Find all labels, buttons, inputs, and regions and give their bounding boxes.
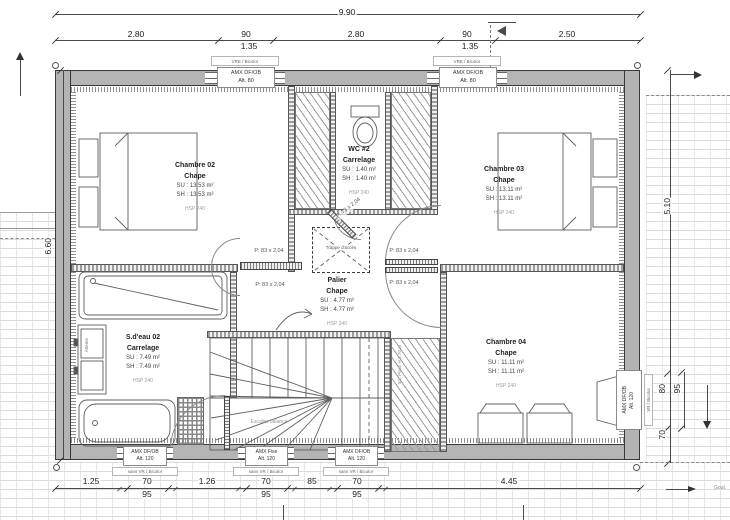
room-su: SU : 7.49 m² bbox=[126, 354, 160, 363]
dim-value: 2.80 bbox=[127, 30, 146, 39]
room-su: SU : 13.11 m² bbox=[484, 186, 524, 195]
window-type: AMX DF/OB bbox=[131, 449, 159, 456]
attente-note: Attente bbox=[85, 338, 90, 352]
dim-value: 90 bbox=[461, 30, 472, 39]
partition-stairs-right bbox=[384, 338, 391, 452]
floor-plan-canvas: 9.90 2.80 90 1.35 2.80 90 1.35 2.50 6.60… bbox=[0, 0, 730, 520]
dim-value: 70 bbox=[351, 477, 362, 486]
door-leaf-chambre02 bbox=[240, 262, 302, 270]
room-finish: Chape bbox=[486, 349, 526, 360]
room-label-chambre03: Chambre 03 Chape SU : 13.11 m² SH : 13.1… bbox=[484, 165, 524, 216]
room-finish: Chape bbox=[320, 287, 354, 298]
window-alt: Alt. 120 bbox=[137, 456, 154, 463]
room-hsp: HSP 240 bbox=[126, 378, 160, 384]
door-leaf-chambre04 bbox=[385, 267, 438, 273]
window-type: AMX DF/OB bbox=[453, 70, 483, 77]
corner-point bbox=[634, 62, 641, 69]
room-sh: SH : 7.49 m² bbox=[126, 363, 160, 372]
room-hsp: HSP 240 bbox=[484, 210, 524, 216]
dim-left-height: 6.60 bbox=[44, 238, 53, 255]
room-name: WC #2 bbox=[342, 145, 376, 156]
room-hsp: HSP 240 bbox=[486, 383, 526, 389]
dim-value: 4.45 bbox=[500, 477, 519, 486]
dim-tick bbox=[637, 11, 644, 18]
up-arrowhead bbox=[16, 52, 24, 60]
window-label-top-right: AMX DF/OB Alt. 80 bbox=[439, 67, 497, 88]
window-label-bottom-middle: AMX Fixe Alt. 120 bbox=[245, 446, 288, 466]
section-marker-triangle bbox=[497, 26, 506, 36]
door-label: P: 83 x 2,04 bbox=[389, 249, 418, 255]
window-tag: sans VR / Bicolor bbox=[323, 467, 389, 476]
room-su: SU : 4.77 m² bbox=[320, 297, 354, 306]
dim-value-sub: 95 bbox=[351, 490, 362, 499]
room-sh: SH : 4.77 m² bbox=[320, 306, 354, 315]
section-marker-line bbox=[488, 22, 516, 23]
dim-value-sub: 95 bbox=[141, 490, 152, 499]
dim-total-width: 9.90 bbox=[338, 8, 357, 17]
room-finish: Carrelage bbox=[126, 344, 160, 355]
stairs-side-note: SC: Placo H 1.70 m bbox=[398, 345, 403, 385]
dim-value: 70 bbox=[260, 477, 271, 486]
dim-value-sub: 95 bbox=[260, 490, 271, 499]
room-hsp: HSP 240 bbox=[342, 190, 376, 196]
right-arrowhead bbox=[688, 486, 696, 492]
partition-wc-right bbox=[385, 92, 391, 210]
room-name: S.d'eau 02 bbox=[126, 333, 160, 344]
dim-value: 90 bbox=[240, 30, 251, 39]
dim-line-left bbox=[63, 70, 64, 460]
partition-chambre04-left bbox=[440, 272, 447, 452]
dim-value: 70 bbox=[141, 477, 152, 486]
room-name: Chambre 04 bbox=[486, 338, 526, 349]
window-type: AMX DF/OB bbox=[343, 449, 371, 456]
slope-arrow-line bbox=[707, 385, 708, 423]
room-sh: SH : 13.11 m² bbox=[484, 195, 524, 204]
height-limit-dashed-line bbox=[640, 462, 730, 463]
window-type: AMX DF/OB bbox=[231, 70, 261, 77]
room-finish: Chape bbox=[484, 176, 524, 187]
door-leaf-chambre03 bbox=[385, 259, 438, 265]
gutter-note: Gout. bbox=[714, 486, 726, 491]
room-label-chambre02: Chambre 02 Chape SU : 13.53 m² SH : 13.5… bbox=[175, 161, 215, 212]
north-arrow-line bbox=[20, 58, 21, 96]
room-name: Chambre 02 bbox=[175, 161, 215, 172]
room-name: Chambre 03 bbox=[484, 165, 524, 176]
room-su: SU : 13.53 m² bbox=[175, 182, 215, 191]
dim-tick bbox=[637, 37, 644, 44]
window-tag: VR / Bicolor bbox=[644, 374, 653, 426]
room-sh: SH : 13.53 m² bbox=[175, 191, 215, 200]
room-label-palier: Palier Chape SU : 4.77 m² SH : 4.77 m² H… bbox=[320, 276, 354, 327]
partition-wc-left bbox=[330, 92, 336, 210]
window-label-right: AMX DF/OB Alt. 120 bbox=[616, 370, 642, 430]
roof-edge-line bbox=[0, 212, 55, 213]
room-finish: Chape bbox=[175, 172, 215, 183]
dim-arrow-line bbox=[670, 74, 696, 75]
down-arrowhead bbox=[703, 421, 711, 429]
shower-icon bbox=[79, 272, 227, 319]
partition-chambre02-right bbox=[288, 86, 295, 272]
dim-value: 1.26 bbox=[198, 477, 217, 486]
window-alt: Alt. 80 bbox=[460, 78, 476, 85]
window-tag: VRE / Bicolor bbox=[211, 56, 279, 66]
dim-value: 1.25 bbox=[82, 477, 101, 486]
door-label: P: 83 x 2,04 bbox=[255, 283, 284, 289]
room-label-wc: WC #2 Carrelage SU : 1.40 m² SH : 1.40 m… bbox=[342, 145, 376, 196]
partition-chambre03-bottom bbox=[440, 264, 624, 272]
exterior-wall-top bbox=[55, 70, 640, 86]
dim-value: 2.80 bbox=[347, 30, 366, 39]
dim-value: 70 bbox=[658, 430, 667, 439]
insulation-bottom bbox=[71, 438, 624, 443]
corner-point bbox=[633, 464, 640, 471]
height-limit-dashed-line bbox=[646, 95, 730, 96]
room-su: SU : 1.40 m² bbox=[342, 166, 376, 175]
dim-extension-line bbox=[523, 505, 524, 520]
window-label-bottom-left: AMX DF/OB Alt. 120 bbox=[123, 446, 167, 466]
attic-hatch-text: Trappe d'accès bbox=[325, 245, 357, 250]
gutter-arrow-line bbox=[666, 489, 690, 490]
dim-value: 80 bbox=[658, 384, 667, 393]
room-sh: SH : 1.40 m² bbox=[342, 175, 376, 184]
dim-right-height: 5.10 bbox=[663, 198, 672, 215]
closet-left-hatch bbox=[295, 92, 330, 209]
insulation-top bbox=[71, 87, 624, 92]
dim-value: 85 bbox=[306, 477, 317, 486]
window-tag: sans VR / Bicolor bbox=[112, 467, 178, 476]
dim-extension-line bbox=[283, 505, 284, 520]
room-label-chambre04: Chambre 04 Chape SU : 11.11 m² SH : 11.1… bbox=[486, 338, 526, 389]
corner-point bbox=[53, 464, 60, 471]
door-label: P: 83 x 2,04 bbox=[254, 249, 283, 255]
dim-value-sub: 1.35 bbox=[240, 42, 259, 51]
room-label-sdeau: S.d'eau 02 Carrelage SU : 7.49 m² SH : 7… bbox=[126, 333, 160, 384]
partition-chambre03-left bbox=[431, 86, 438, 212]
dim-line-top-chain bbox=[55, 40, 640, 41]
dim-line-right bbox=[670, 70, 671, 463]
vanity-icon bbox=[74, 325, 106, 394]
dim-value: 2.50 bbox=[558, 30, 577, 39]
window-alt: Alt. 80 bbox=[238, 78, 254, 85]
window-tag-text: VR / Bicolor bbox=[646, 388, 651, 412]
corner-point bbox=[52, 62, 59, 69]
right-arrowhead bbox=[694, 71, 702, 79]
door-label: P: 83 x 2,04 bbox=[389, 281, 418, 287]
roof-edge-line bbox=[0, 228, 55, 229]
partition-stairs-top bbox=[207, 331, 391, 338]
room-hsp: HSP 240 bbox=[175, 206, 215, 212]
window-label-top-left: AMX DF/OB Alt. 80 bbox=[217, 67, 275, 88]
stairs-direction-arrow bbox=[276, 309, 312, 330]
dim-line-right-2 bbox=[684, 372, 685, 428]
window-label-bottom-right: AMX DF/OB Alt. 120 bbox=[335, 446, 378, 466]
room-hsp: HSP 240 bbox=[320, 321, 354, 327]
attic-hatch-label: Trappe d'accès bbox=[312, 246, 370, 251]
window-tag: VRE / Bicolor bbox=[433, 56, 501, 66]
window-alt: Alt. 120 bbox=[258, 456, 275, 463]
window-alt: Alt. 120 bbox=[348, 456, 365, 463]
dim-value: 95 bbox=[673, 384, 682, 393]
window-alt: Alt. 120 bbox=[629, 392, 636, 409]
closet-right-hatch bbox=[391, 92, 431, 209]
room-name: Palier bbox=[320, 276, 354, 287]
room-su: SU : 11.11 m² bbox=[486, 359, 526, 368]
toilet-icon bbox=[351, 106, 379, 147]
room-sh: SH : 11.11 m² bbox=[486, 368, 526, 377]
stairs-note: Escalier balancé bbox=[251, 420, 288, 425]
window-type: AMX DF/OB bbox=[622, 386, 629, 414]
door-leaf-sdeau bbox=[224, 396, 230, 450]
dim-value-sub: 1.35 bbox=[461, 42, 480, 51]
exterior-brick-right bbox=[646, 95, 730, 462]
window-tag: sans VR / Bicolor bbox=[233, 467, 299, 476]
room-finish: Carrelage bbox=[342, 156, 376, 167]
window-type: AMX Fixe bbox=[256, 449, 278, 456]
